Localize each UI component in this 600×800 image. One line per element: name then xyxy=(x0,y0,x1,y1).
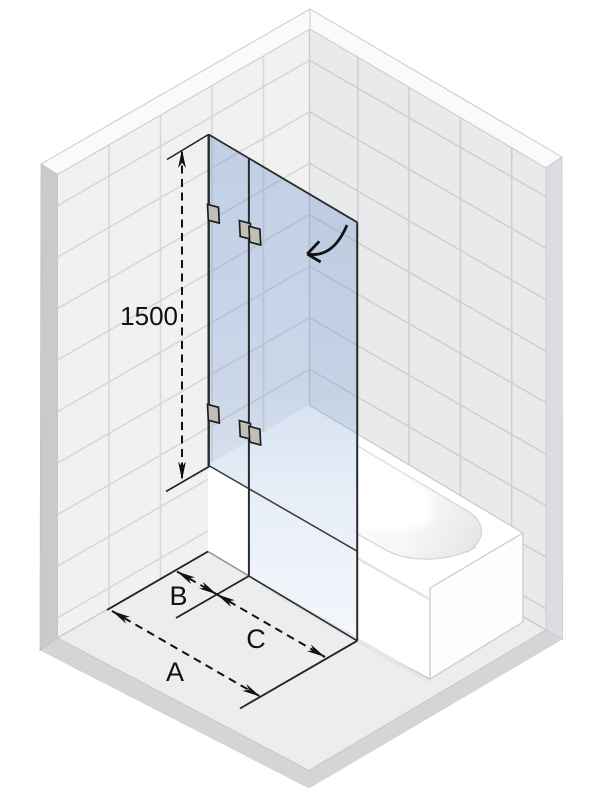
svg-text:1500: 1500 xyxy=(120,301,178,331)
svg-text:C: C xyxy=(246,624,266,654)
svg-text:A: A xyxy=(166,657,184,687)
svg-text:B: B xyxy=(169,581,187,611)
